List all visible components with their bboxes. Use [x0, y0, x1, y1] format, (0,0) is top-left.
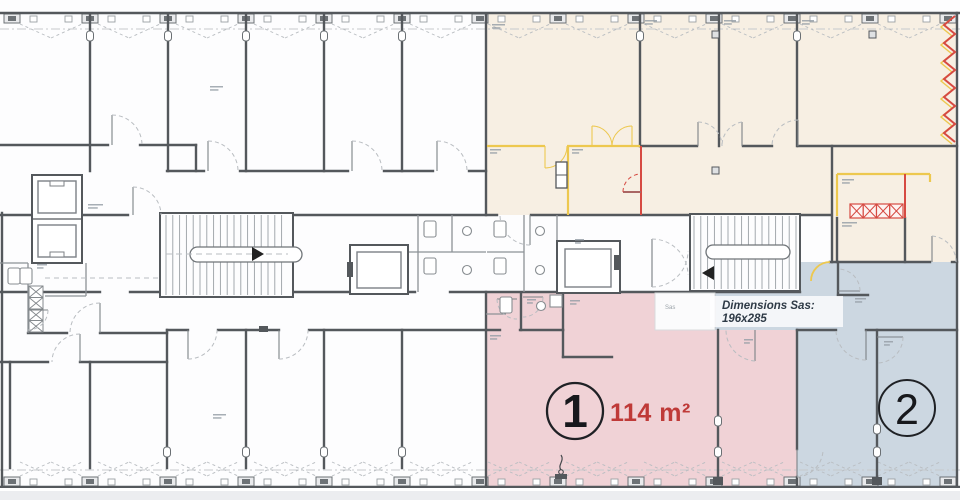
window-swing — [254, 462, 285, 476]
wall-node — [874, 424, 881, 434]
window-tick — [30, 16, 37, 22]
room-label-mark — [855, 301, 862, 303]
room-label-mark — [645, 23, 653, 25]
wall-node — [243, 447, 250, 457]
elevator-door — [347, 262, 353, 277]
window-swing — [20, 24, 51, 38]
footer-strip — [0, 491, 960, 500]
room-label-mark — [842, 222, 857, 224]
room-label-mark — [724, 23, 732, 25]
door-swing — [188, 330, 217, 359]
wall-node — [399, 447, 406, 457]
wall-base — [713, 477, 723, 485]
window-swing — [176, 462, 207, 476]
shower-fixture — [550, 295, 562, 307]
wall-node — [794, 31, 801, 41]
door-swing — [437, 141, 467, 171]
window-mullion-mark — [8, 479, 16, 484]
wc-fixture — [20, 268, 32, 284]
elevator-door — [50, 252, 64, 257]
room-label-mark — [492, 24, 505, 26]
window-tick — [65, 479, 72, 485]
room-label-mark — [884, 344, 890, 346]
room-label-mark — [724, 20, 736, 22]
window-tick — [767, 16, 774, 22]
elevator-door — [614, 255, 620, 270]
window-tick — [923, 479, 930, 485]
window-tick — [455, 479, 462, 485]
window-tick — [732, 479, 739, 485]
window-swing — [51, 462, 82, 476]
wc-fixture — [8, 268, 20, 284]
unit-1-area: 114 m² — [610, 399, 691, 427]
window-tick — [299, 16, 306, 22]
window-mullion-mark — [242, 479, 250, 484]
window-tick — [533, 16, 540, 22]
door-swing — [352, 141, 382, 171]
basin-fixture — [536, 227, 545, 236]
window-swing — [98, 24, 129, 38]
window-tick — [108, 479, 115, 485]
window-tick — [845, 16, 852, 22]
window-mullion-mark — [86, 479, 94, 484]
window-swing — [176, 462, 207, 476]
room-label-mark — [802, 20, 814, 22]
room-label-mark — [744, 339, 753, 341]
window-tick — [186, 16, 193, 22]
basin-fixture — [463, 266, 472, 275]
window-tick — [533, 479, 540, 485]
window-tick — [186, 479, 193, 485]
window-tick — [221, 16, 228, 22]
window-swing — [207, 24, 238, 38]
window-swing — [51, 462, 82, 476]
window-tick — [654, 479, 661, 485]
window-tick — [143, 16, 150, 22]
window-tick — [767, 479, 774, 485]
window-tick — [689, 16, 696, 22]
window-tick — [888, 16, 895, 22]
wall-node — [164, 447, 171, 457]
stair-rail — [706, 245, 790, 259]
window-tick — [143, 479, 150, 485]
window-mullion-mark — [788, 16, 796, 21]
window-swing — [363, 462, 394, 476]
window-swing — [254, 24, 285, 38]
window-tick — [576, 16, 583, 22]
window-tick — [377, 16, 384, 22]
window-swing — [207, 462, 238, 476]
window-tick — [65, 16, 72, 22]
room-label-mark — [490, 152, 497, 154]
room-label-mark — [645, 20, 657, 22]
window-swing — [129, 24, 160, 38]
room-label-mark — [570, 303, 577, 305]
window-tick — [30, 479, 37, 485]
wall-box — [712, 167, 719, 174]
window-swing — [441, 462, 472, 476]
window-mullion-mark — [476, 16, 484, 21]
room-label-mark — [527, 299, 536, 301]
window-mullion-mark — [398, 479, 406, 484]
window-tick — [611, 479, 618, 485]
window-swing — [441, 462, 472, 476]
room-label-mark — [213, 417, 221, 419]
window-mullion-mark — [320, 479, 328, 484]
basin-fixture — [537, 302, 546, 311]
wall-node — [243, 31, 250, 41]
basin-fixture — [536, 266, 545, 275]
room-label-mark — [88, 204, 103, 206]
door-swing — [133, 187, 161, 215]
window-tick — [264, 479, 271, 485]
window-swing — [20, 462, 51, 476]
room-label-mark — [855, 298, 866, 300]
window-mullion-mark — [554, 479, 562, 484]
floor-plan-drawing: Sas Dimensions Sas: 196x285 1 114 m² 2 — [0, 0, 960, 500]
wall-node — [321, 31, 328, 41]
window-swing — [129, 462, 160, 476]
window-tick — [299, 479, 306, 485]
room-label-mark — [884, 341, 893, 343]
room-label-mark — [842, 225, 852, 227]
window-tick — [221, 479, 228, 485]
window-tick — [108, 16, 115, 22]
window-swing — [129, 462, 160, 476]
room-label-mark — [842, 179, 854, 181]
window-tick — [611, 16, 618, 22]
dimensions-note-line1: Dimensions Sas: — [722, 300, 815, 312]
wall-node — [321, 447, 328, 457]
wc-fixture — [494, 221, 506, 237]
basin-fixture — [463, 227, 472, 236]
window-tick — [455, 16, 462, 22]
window-tick — [342, 16, 349, 22]
wall-base — [872, 477, 882, 485]
wall-node — [165, 31, 172, 41]
window-swing — [98, 462, 129, 476]
window-tick — [923, 16, 930, 22]
wall-node — [715, 447, 722, 457]
window-tick — [845, 479, 852, 485]
window-mullion-mark — [866, 16, 874, 21]
room-label-mark — [37, 264, 47, 266]
window-mullion-mark — [476, 479, 484, 484]
room-label-mark — [572, 152, 579, 154]
room-label-mark — [210, 86, 223, 88]
wc-fixture — [424, 221, 436, 237]
window-tick — [888, 479, 895, 485]
window-swing — [285, 24, 316, 38]
window-tick — [576, 479, 583, 485]
room-label-mark — [572, 149, 583, 151]
window-swing — [332, 24, 363, 38]
wc-fixture — [494, 258, 506, 274]
window-tick — [810, 479, 817, 485]
unit-2-number: 2 — [895, 386, 919, 434]
room-label-mark — [210, 89, 218, 91]
window-mullion-mark — [788, 479, 796, 484]
window-mullion-mark — [944, 479, 952, 484]
window-swing — [254, 462, 285, 476]
window-mullion-mark — [8, 16, 16, 21]
window-swing — [51, 24, 82, 38]
floor-plan-page: Sas Dimensions Sas: 196x285 1 114 m² 2 — [0, 0, 960, 500]
wall-notch — [259, 326, 268, 332]
sas-room-label: Sas — [665, 305, 675, 311]
window-tick — [420, 16, 427, 22]
room-label-mark — [575, 242, 581, 244]
wc-fixture — [424, 258, 436, 274]
room-label-mark — [490, 335, 501, 337]
room-label-mark — [88, 207, 98, 209]
window-swing — [176, 24, 207, 38]
wall-node — [874, 447, 881, 457]
window-mullion-mark — [554, 16, 562, 21]
room-label-mark — [575, 239, 584, 241]
window-mullion-mark — [164, 479, 172, 484]
window-swing — [410, 24, 441, 38]
room-label-mark — [802, 23, 810, 25]
unit-1-number: 1 — [562, 385, 588, 437]
window-swing — [20, 462, 51, 476]
window-swing — [441, 24, 472, 38]
window-tick — [377, 479, 384, 485]
room-label-mark — [37, 267, 44, 269]
wall-node — [399, 31, 406, 41]
window-swing — [332, 462, 363, 476]
room-label-mark — [213, 414, 226, 416]
window-swing — [207, 462, 238, 476]
wall-node — [637, 31, 644, 41]
wall-node — [87, 31, 94, 41]
room-label-mark — [492, 27, 500, 29]
window-tick — [264, 16, 271, 22]
window-mullion-mark — [632, 479, 640, 484]
window-mullion-mark — [710, 16, 718, 21]
window-tick — [420, 479, 427, 485]
door-swing — [70, 303, 100, 333]
room-label-mark — [744, 342, 750, 344]
window-tick — [689, 479, 696, 485]
room-label-mark — [527, 302, 533, 304]
room-label-mark — [570, 300, 580, 302]
room-label-mark — [490, 338, 497, 340]
window-tick — [342, 479, 349, 485]
elevator-car — [565, 249, 611, 287]
door-swing — [112, 115, 142, 145]
window-swing — [332, 462, 363, 476]
window-swing — [363, 24, 394, 38]
lamp-base — [555, 474, 567, 479]
elevator-car — [357, 252, 401, 288]
sas-room-box — [655, 293, 715, 330]
wc-fixture — [500, 297, 512, 313]
wall-node — [715, 416, 722, 426]
wall-box — [712, 31, 719, 38]
window-swing — [410, 462, 441, 476]
room-label-mark — [490, 149, 501, 151]
door-swing — [52, 334, 80, 362]
window-tick — [498, 479, 505, 485]
window-swing — [285, 462, 316, 476]
door-swing — [279, 330, 308, 359]
window-swing — [98, 462, 129, 476]
dimensions-note-line2: 196x285 — [722, 313, 767, 325]
room-label-mark — [842, 182, 850, 184]
window-tick — [498, 16, 505, 22]
wall-box — [869, 31, 876, 38]
window-swing — [363, 462, 394, 476]
window-swing — [285, 462, 316, 476]
door-swing — [208, 141, 238, 171]
elevator-door — [50, 181, 64, 186]
window-swing — [410, 462, 441, 476]
